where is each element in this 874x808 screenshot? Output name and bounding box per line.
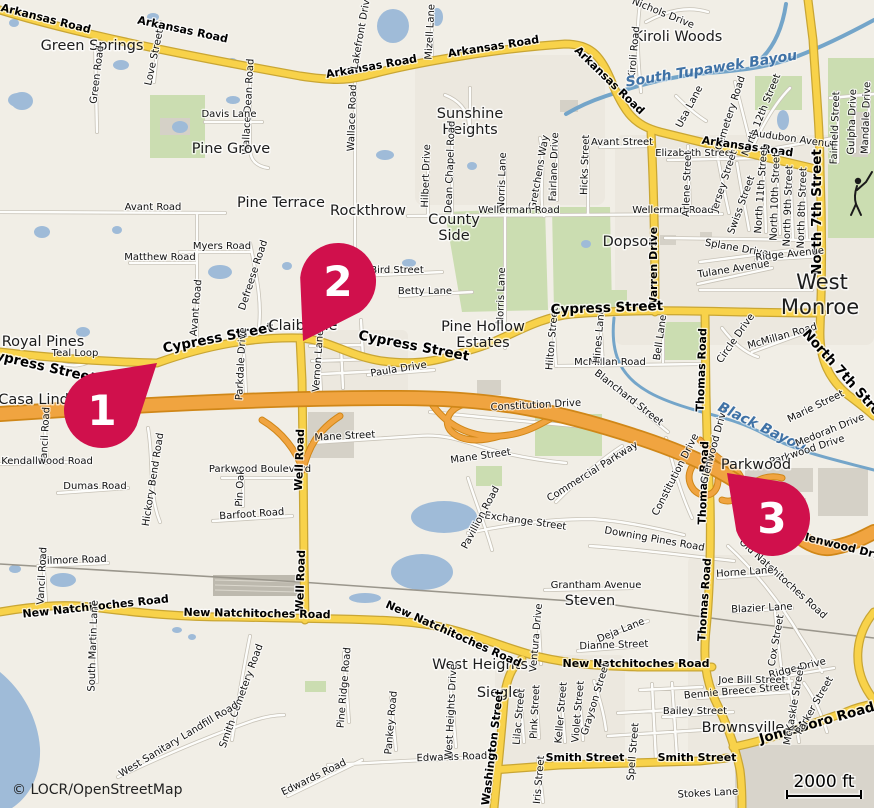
- place-label: Monroe: [781, 295, 859, 319]
- place-label: Pine Grove: [192, 141, 271, 157]
- road-label: Norris Lane: [496, 152, 509, 209]
- road-label: Avant Road: [189, 279, 205, 337]
- road-label: McMillan Road: [574, 357, 646, 368]
- road-label: Teal Loop: [51, 348, 99, 359]
- road-label: Well Road: [293, 550, 308, 612]
- road-label: Mane Street: [450, 447, 512, 466]
- road-label: Wallace Road: [346, 84, 359, 151]
- place-label: Sunshine: [437, 106, 504, 122]
- road-label: Grantham Avenue: [551, 580, 642, 591]
- attribution: © LOCR/OpenStreetMap: [12, 782, 183, 798]
- marker-number: 1: [87, 386, 116, 435]
- road-label: Norris Lane: [495, 267, 508, 324]
- road-label: Barfoot Road: [219, 507, 285, 523]
- road-label: Mizell Lane: [424, 4, 438, 60]
- scale-label: 2000 ft: [793, 772, 854, 792]
- road-label: Hickory Bend Road: [141, 432, 167, 527]
- road-label: New Natchitoches Road: [183, 606, 330, 622]
- scale-bar: 2000 ft: [787, 772, 861, 799]
- road-label: Bird Street: [370, 265, 424, 276]
- place-label: Steven: [565, 593, 616, 609]
- map-marker-2[interactable]: 2: [300, 243, 376, 341]
- road-label: Avant Street: [591, 137, 653, 148]
- road-label: New Natchitoches Road: [563, 657, 710, 670]
- place-label: Green Springs: [41, 38, 144, 54]
- road-label: Wellerman Road: [478, 205, 560, 216]
- road-label: Bailey Street: [663, 706, 727, 717]
- place-label: Rockthrow: [330, 203, 406, 219]
- map-view: Arkansas RoadArkansas RoadGreen SpringsL…: [0, 0, 874, 808]
- road-label: Dianne Street: [579, 639, 648, 652]
- place-label: County: [428, 212, 480, 228]
- road-label: Cypress Street: [161, 319, 275, 356]
- road-label: Myers Road: [193, 241, 251, 252]
- map-canvas: Arkansas RoadArkansas RoadGreen SpringsL…: [0, 0, 874, 808]
- road-label: Marie Street: [786, 388, 846, 425]
- place-label: West: [796, 270, 848, 294]
- road-label: Usa Lane: [674, 84, 705, 130]
- road-label: Spell Street: [626, 722, 642, 781]
- road-label: Elizabeth Street: [655, 148, 735, 159]
- road-label: Avant Road: [125, 202, 182, 213]
- road-label: Well Road: [292, 429, 307, 491]
- place-label: Side: [438, 228, 469, 244]
- place-label: Pine Terrace: [237, 195, 325, 211]
- place-label: Estates: [456, 335, 509, 351]
- place-label: Kiroli Woods: [634, 29, 723, 45]
- road-label: Davis Lane: [201, 109, 256, 120]
- road-label: Warren Drive: [647, 227, 660, 309]
- road-label: Pin Oak: [234, 468, 247, 507]
- road-label: Hilbert Drive: [420, 144, 433, 208]
- road-label: Gilmore Road: [39, 554, 107, 567]
- road-label: Edwards Road: [280, 757, 348, 798]
- marker-number: 2: [323, 257, 352, 306]
- road-label: Love Street: [143, 28, 166, 86]
- road-label: Smith Cemetery Road: [218, 643, 266, 750]
- road-label: Mane Street: [314, 429, 375, 443]
- road-label: Matthew Road: [124, 252, 196, 263]
- marker-number: 3: [757, 494, 786, 543]
- road-label: Smith Street: [546, 751, 625, 764]
- road-label: Pine Ridge Road: [335, 647, 353, 729]
- road-label: Kendallwood Road: [1, 456, 93, 467]
- road-label: Stokes Lane: [677, 786, 738, 800]
- road-label: Arkansas Road: [136, 14, 229, 46]
- road-label: Dumas Road: [63, 481, 126, 492]
- place-label: Parkwood: [721, 457, 791, 473]
- road-label: Wellerman Road: [632, 205, 714, 216]
- water-label: Black Bayou: [715, 399, 808, 455]
- road-label: Betty Lane: [398, 286, 452, 297]
- road-label: Gulpha Drive: [846, 89, 859, 155]
- road-label: Smith Street: [658, 751, 737, 764]
- place-label: Pine Hollow: [441, 319, 525, 335]
- road-label: Arlene Street: [681, 151, 694, 217]
